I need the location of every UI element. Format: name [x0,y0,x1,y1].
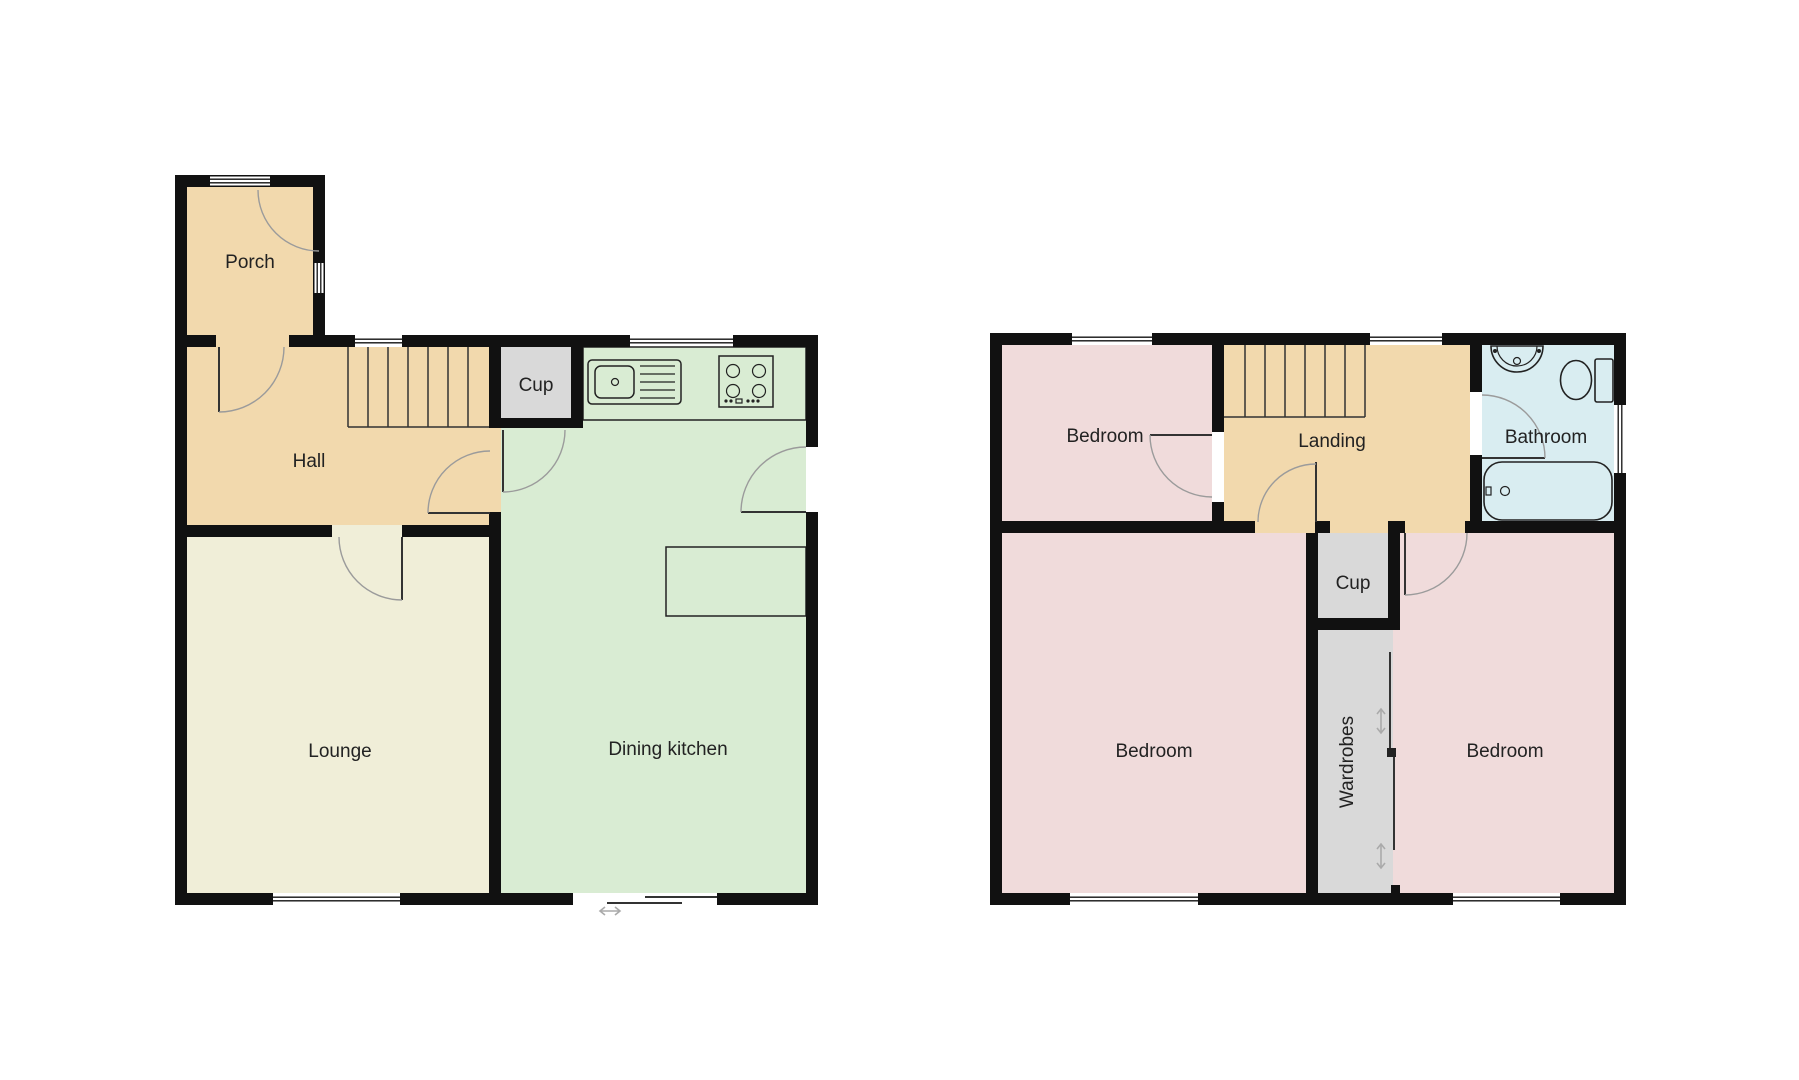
room-label-bedroom-bottomright: Bedroom [1466,741,1543,762]
sliding-door-overlap [1387,748,1396,757]
window-bedroom-bottomleft [1070,895,1198,904]
window-landing-top [1370,335,1442,344]
staircase-icon [348,347,489,427]
room-dining-kitchen-floor [501,347,806,893]
window-bedroom-topleft [1072,335,1152,344]
window-bedroom-bottomright [1453,895,1560,904]
dining-table [666,547,806,616]
window-porch-top [210,177,270,186]
room-label-landing: Landing [1298,431,1366,452]
window-lounge [273,895,400,904]
first-floor-plan: Bedroom Landing Bathroom Cup Wardrobes B… [990,333,1626,905]
room-label-porch: Porch [225,252,275,273]
room-label-cup-gf: Cup [519,375,554,396]
room-label-cup-ff: Cup [1336,573,1371,594]
window-above-stairs [355,337,402,346]
ground-floor-plan: Porch Hall Cup Lounge Dining kitchen [175,175,818,915]
window-porch-side [315,263,324,293]
room-label-lounge: Lounge [308,741,371,762]
floorplan-page: Porch Hall Cup Lounge Dining kitchen [0,0,1799,1080]
room-label-bathroom: Bathroom [1505,427,1587,448]
kitchen-sink-icon [588,360,681,404]
slide-arrow-horizontal-icon [600,907,620,915]
room-label-bedroom-topleft: Bedroom [1066,426,1143,447]
sliding-patio-door-icon [600,897,717,915]
window-kitchen [630,337,733,346]
floorplan-drawing: Porch Hall Cup Lounge Dining kitchen [0,0,1799,1080]
room-label-bedroom-bottomleft: Bedroom [1115,741,1192,762]
room-bedroom-bottomright-floor [1393,533,1614,893]
room-bedroom-bottomleft-floor [1002,533,1306,893]
room-lounge-floor [187,525,489,893]
window-bathroom-side [1616,405,1625,473]
room-label-hall: Hall [293,451,326,472]
bathtub-icon [1484,462,1612,520]
hob-icon [719,356,773,407]
room-label-wardrobes: Wardrobes [1337,716,1358,808]
room-label-dining-kitchen: Dining kitchen [608,739,727,760]
